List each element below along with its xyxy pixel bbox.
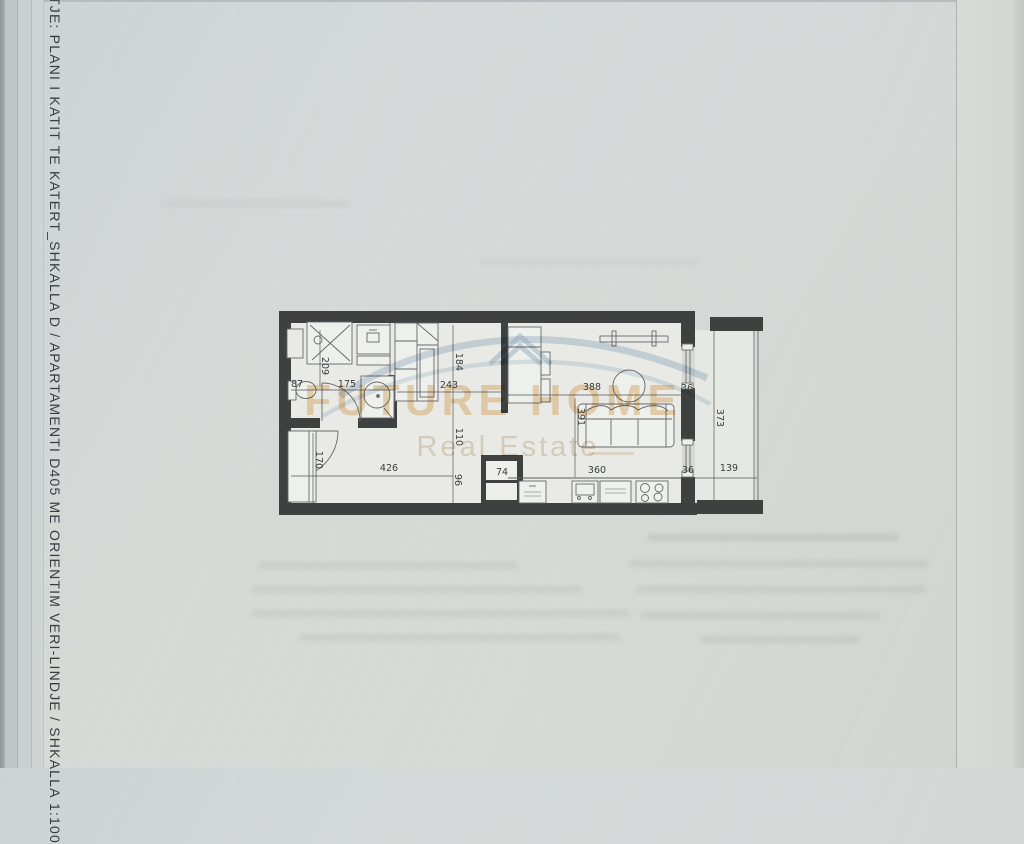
stove (636, 481, 668, 503)
dim-87: 87 (291, 379, 303, 390)
dishwasher (600, 481, 631, 503)
wall-niche (287, 329, 303, 358)
watermark-tagline-text: Real Estate (398, 431, 618, 464)
watermark-tagline-dash (588, 452, 634, 455)
paper-top-edge (0, 0, 1024, 2)
bleed-through-text (700, 636, 860, 643)
bleed-through-text (252, 586, 582, 593)
bleed-through-text (250, 610, 630, 617)
dim-96: 96 (452, 474, 463, 486)
bleed-through-text (160, 200, 350, 207)
book-spine-strip (18, 0, 32, 768)
bleed-through-text (258, 562, 518, 569)
kitchen-sink (572, 481, 598, 503)
bleed-through-text (480, 258, 700, 265)
bleed-through-text (300, 634, 620, 641)
plan-side-caption: TJE: PLANI I KATIT TE KATERT_SHKALLA D /… (41, 0, 63, 786)
watermark-brand-text: FUTURE HOME (303, 376, 683, 426)
dim-74: 74 (496, 467, 508, 478)
page-edge-paper (957, 0, 1024, 768)
bleed-through-text (648, 534, 898, 541)
dim-360: 360 (588, 465, 606, 476)
bleed-through-text (636, 586, 926, 593)
book-spine-strip (5, 0, 18, 768)
bleed-through-text (628, 560, 928, 567)
kitchen-unit (519, 481, 546, 503)
dim-36-window-bottom: 36 (682, 465, 694, 476)
bleed-through-text (640, 612, 880, 619)
